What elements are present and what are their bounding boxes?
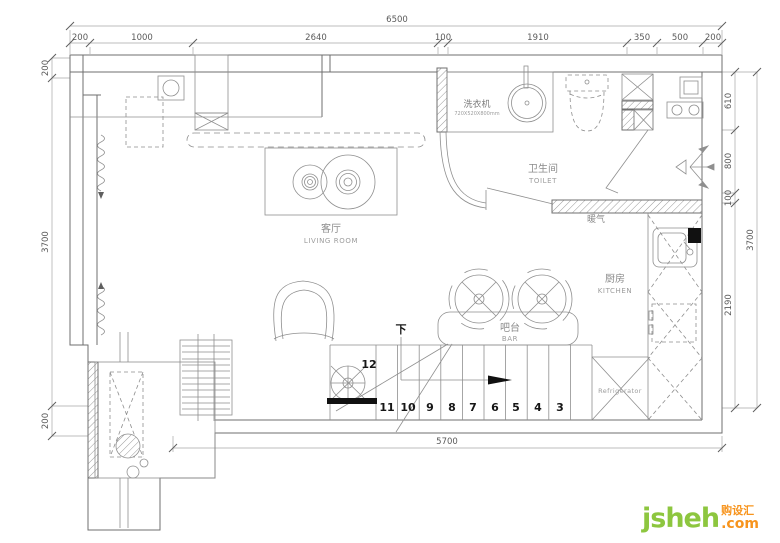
stair-marker bbox=[327, 398, 377, 404]
dim-top-4: 1910 bbox=[527, 33, 549, 43]
bar-stool bbox=[449, 269, 509, 329]
label-heater: 暖气 bbox=[587, 213, 605, 225]
label-washer-size: 720X520X800mm bbox=[454, 111, 499, 117]
stair-number: 8 bbox=[448, 401, 456, 414]
label-washer: 洗衣机 bbox=[463, 98, 490, 110]
label-kitchen-zh: 厨房 bbox=[605, 272, 625, 285]
stair-number: 4 bbox=[534, 401, 542, 414]
direction-arrow-icon bbox=[488, 376, 512, 385]
dim-top-7: 200 bbox=[705, 33, 721, 43]
toilet-door bbox=[487, 188, 553, 204]
dimension-ticks bbox=[48, 22, 761, 452]
toilet-fixture bbox=[566, 75, 608, 131]
floor-plan-canvas: 6500 200 1000 2640 100 1910 350 500 200 … bbox=[0, 0, 780, 543]
dim-top-2: 2640 bbox=[305, 33, 327, 43]
label-living-en: LIVING ROOM bbox=[304, 237, 358, 245]
living-room-table bbox=[265, 148, 397, 215]
dim-right-0: 610 bbox=[724, 93, 734, 109]
water-heater bbox=[667, 102, 703, 118]
ceiling-fan-icon bbox=[331, 366, 366, 400]
basin bbox=[680, 77, 702, 98]
dim-top-6: 500 bbox=[672, 33, 688, 43]
curtain-icon bbox=[98, 135, 105, 191]
watermark-tld-text: .com bbox=[721, 517, 759, 531]
radiator-grille bbox=[180, 334, 232, 421]
watermark-logo: jsheh 购设汇 .com bbox=[642, 505, 759, 532]
dim-left-2: 200 bbox=[41, 413, 51, 429]
label-living-zh: 客厅 bbox=[321, 222, 341, 235]
dim-left-0: 200 bbox=[41, 60, 51, 76]
under-counter-appliance bbox=[126, 97, 163, 147]
dim-right-1: 800 bbox=[724, 153, 734, 169]
dim-right-2: 100 bbox=[724, 190, 734, 206]
stair-number: 6 bbox=[491, 401, 499, 414]
direction-line bbox=[401, 337, 490, 380]
curtain-icon bbox=[98, 286, 105, 335]
pipes bbox=[120, 332, 128, 528]
wash-basin bbox=[508, 84, 546, 122]
kitchen-sink-left bbox=[158, 76, 184, 100]
dim-right-3: 2190 bbox=[724, 294, 734, 316]
label-bar-en: BAR bbox=[502, 335, 518, 343]
armchair bbox=[274, 281, 334, 341]
overhead-beam bbox=[187, 133, 425, 147]
watermark-brand-text: jsheh bbox=[642, 505, 719, 532]
dim-top-1: 1000 bbox=[131, 33, 153, 43]
stair-number: 11 bbox=[379, 401, 394, 414]
oven bbox=[652, 304, 696, 342]
dim-top-3: 100 bbox=[435, 33, 451, 43]
label-kitchen-en: KITCHEN bbox=[598, 287, 633, 295]
stair-number: 3 bbox=[556, 401, 564, 414]
dim-top-0: 200 bbox=[72, 33, 88, 43]
label-stairs-down: 下 bbox=[396, 323, 407, 336]
label-refrigerator: Refrigerator bbox=[598, 387, 642, 395]
stair-number: 10 bbox=[400, 401, 416, 414]
dim-left-1: 3700 bbox=[41, 231, 51, 253]
dim-top-5: 350 bbox=[634, 33, 650, 43]
stair-number: 12 bbox=[361, 358, 376, 371]
shower-door bbox=[606, 130, 648, 193]
label-toilet-en: TOILET bbox=[528, 177, 557, 185]
bar-stool bbox=[512, 269, 572, 329]
stair-number: 7 bbox=[469, 401, 477, 414]
closet bbox=[195, 55, 228, 113]
shower-head-icon bbox=[676, 146, 714, 188]
dim-top-total: 6500 bbox=[386, 15, 408, 25]
label-toilet-zh: 卫生间 bbox=[528, 162, 558, 175]
stair-number: 5 bbox=[512, 401, 520, 414]
dim-bottom-total: 5700 bbox=[436, 437, 458, 447]
dim-right-total: 3700 bbox=[746, 229, 756, 251]
floor-plan-drawing: 6500 200 1000 2640 100 1910 350 500 200 … bbox=[0, 0, 780, 543]
stair-number: 9 bbox=[426, 401, 434, 414]
label-bar-zh: 吧台 bbox=[500, 321, 520, 334]
stairs bbox=[327, 337, 592, 432]
